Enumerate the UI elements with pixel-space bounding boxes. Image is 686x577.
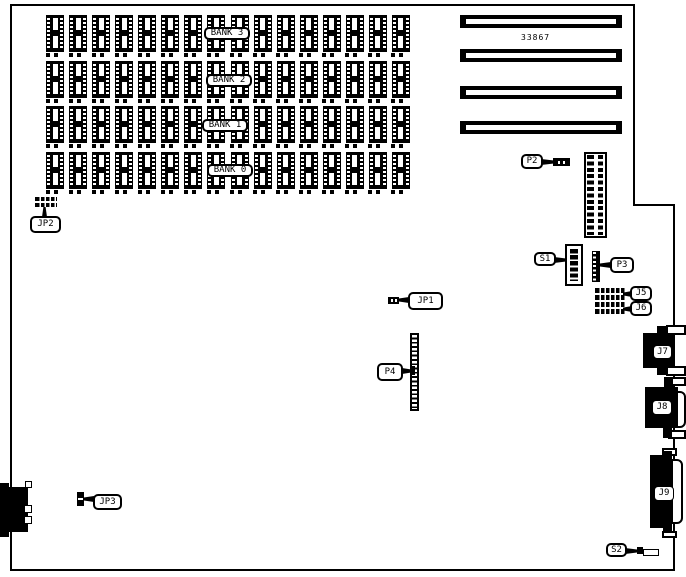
solder-pads [46, 190, 410, 194]
memory-chip [346, 15, 364, 52]
bank1-label: BANK 1 [202, 119, 248, 132]
s2-label: S2 [606, 543, 627, 557]
jp2-label: JP2 [30, 216, 61, 233]
expansion-slot [460, 15, 622, 28]
memory-chip [184, 61, 202, 98]
memory-chip [184, 15, 202, 52]
board-edge-bottom [10, 569, 675, 571]
memory-chip [115, 152, 133, 189]
memory-chip [346, 152, 364, 189]
memory-chip [323, 15, 341, 52]
memory-chip [277, 61, 295, 98]
power-connector [584, 152, 607, 238]
motherboard-diagram: BANK 3 BANK 2 BANK 1 BANK 0 33867 JP2 JP… [0, 0, 686, 577]
jp1-label: JP1 [408, 292, 443, 310]
memory-chip [69, 15, 87, 52]
s1-label: S1 [534, 252, 556, 266]
memory-chip [323, 106, 341, 143]
j7-bottom-tab [666, 366, 686, 376]
memory-chip [254, 15, 272, 52]
power-connector-pins [587, 155, 594, 235]
slot-opening [466, 19, 616, 24]
keyboard-connector-notch-2 [24, 516, 32, 524]
board-edge-step [633, 204, 675, 206]
memory-chip [69, 106, 87, 143]
keyboard-connector-notch-top [25, 481, 32, 488]
memory-chip [46, 152, 64, 189]
slot-opening [466, 53, 616, 58]
memory-chip [161, 152, 179, 189]
memory-chip [346, 106, 364, 143]
memory-chip [254, 61, 272, 98]
memory-chip [46, 61, 64, 98]
slot-opening [466, 90, 616, 95]
jp2-header [35, 197, 57, 207]
j5-header [595, 288, 625, 300]
memory-chip [346, 61, 364, 98]
s2-switch [643, 549, 659, 556]
memory-chip [138, 106, 156, 143]
j6-header [595, 302, 625, 314]
jp3-label: JP3 [93, 494, 122, 510]
memory-chip [184, 106, 202, 143]
p4-label: P4 [377, 363, 403, 381]
p3-connector [592, 251, 600, 282]
memory-chip [323, 61, 341, 98]
memory-chip [277, 152, 295, 189]
memory-chip [138, 61, 156, 98]
memory-chip [92, 152, 110, 189]
j9-bottom-tab [662, 531, 677, 538]
expansion-slot [460, 49, 622, 62]
memory-chip [369, 152, 387, 189]
board-part-number: 33867 [521, 33, 550, 42]
memory-chip [115, 61, 133, 98]
memory-chip [92, 61, 110, 98]
board-edge-left [10, 4, 12, 571]
memory-chip [392, 152, 410, 189]
bank2-label: BANK 2 [206, 74, 252, 87]
memory-chip [46, 106, 64, 143]
s1-switch-positions [570, 249, 578, 281]
memory-chip [323, 152, 341, 189]
power-connector-key-strip [598, 155, 603, 235]
jp3-jumper [77, 492, 84, 506]
memory-chip [300, 61, 318, 98]
memory-chip [184, 152, 202, 189]
memory-chip [277, 15, 295, 52]
board-edge-top [10, 4, 635, 6]
solder-pads [46, 144, 410, 148]
p2-label: P2 [521, 154, 543, 169]
keyboard-connector-notch-1 [24, 505, 32, 513]
memory-chip [392, 106, 410, 143]
j6-label: J6 [630, 301, 652, 316]
memory-chip [46, 15, 64, 52]
memory-chip [392, 61, 410, 98]
memory-chip [115, 15, 133, 52]
memory-chip [392, 15, 410, 52]
memory-chip [254, 152, 272, 189]
expansion-slot [460, 86, 622, 99]
j7-bottom-post [657, 367, 667, 375]
memory-chip [161, 61, 179, 98]
memory-chip [92, 15, 110, 52]
p2-connector [553, 158, 570, 166]
p3-label: P3 [610, 257, 634, 273]
memory-chip [138, 152, 156, 189]
memory-chip [69, 152, 87, 189]
bank3-label: BANK 3 [204, 27, 250, 40]
memory-chip [92, 106, 110, 143]
memory-chip [161, 15, 179, 52]
bank0-label: BANK 0 [207, 164, 253, 177]
memory-chip [300, 15, 318, 52]
memory-chip [138, 15, 156, 52]
memory-chip [254, 106, 272, 143]
j8-bottom-post [663, 428, 672, 438]
board-edge-right-upper [633, 4, 635, 206]
j5-label: J5 [630, 286, 652, 301]
memory-chip [369, 106, 387, 143]
memory-chip [300, 106, 318, 143]
s1-dip-switch [565, 244, 583, 286]
memory-chip [369, 15, 387, 52]
j8-label: J8 [652, 400, 672, 415]
expansion-slot [460, 121, 622, 134]
memory-chip [300, 152, 318, 189]
memory-chip [69, 61, 87, 98]
solder-pads [46, 53, 410, 57]
memory-chip [161, 106, 179, 143]
j7-label: J7 [653, 345, 672, 359]
j8-top-tab [671, 377, 686, 386]
jp1-jumper [388, 297, 399, 304]
slot-opening [466, 125, 616, 130]
memory-chip [369, 61, 387, 98]
memory-chip [277, 106, 295, 143]
j9-label: J9 [654, 486, 674, 501]
solder-pads [46, 99, 410, 103]
memory-chip [115, 106, 133, 143]
